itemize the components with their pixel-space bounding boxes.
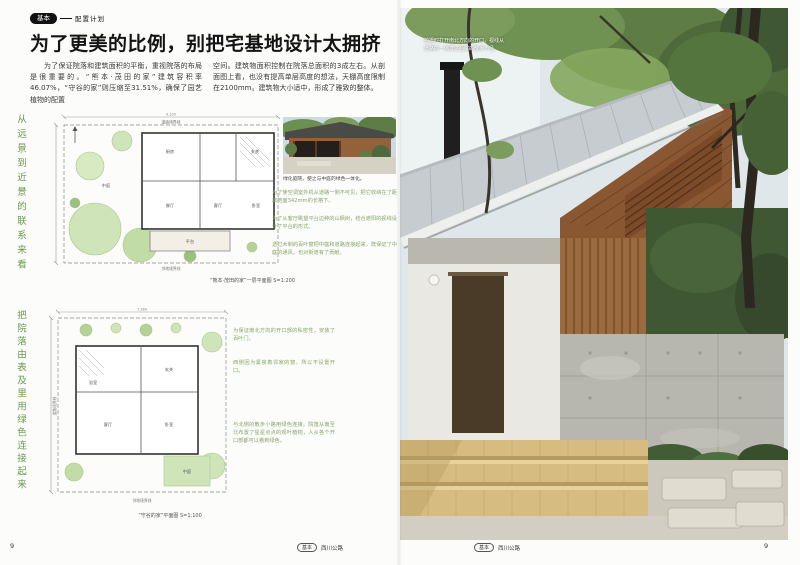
boundary-label-bottom: 邻地境界线 [162, 266, 181, 271]
plan1-caption: “熊本·茂田的家”一层平面图 S=1:200 [95, 277, 295, 284]
garden-foliage [650, 223, 750, 293]
footer-left: 基本 西川公路 [297, 543, 343, 552]
intro-column-1: 为了保证院落和建筑面积的平衡，重视院落的布局是很重要的。“熊本·茂田的家”建筑容… [30, 61, 202, 106]
floor-plan-1: 9,100 道路境界线 邻地境界线 [50, 111, 285, 281]
step-edge [400, 486, 648, 490]
room-label: 客厅 [104, 421, 112, 428]
boundary-label-left: 道路境界线 [52, 396, 57, 415]
room-label: 厨房 [166, 148, 174, 155]
plan1-note-3: 透过木制的百叶窗把中庭和道路连接起来，既保证了中庭的通风，也对街道有了贡献。 [272, 241, 397, 257]
room-label: 卧室 [165, 421, 173, 428]
slat-screen [560, 238, 646, 334]
section-badge: 基本 [30, 13, 57, 24]
room-label: 浴室 [89, 379, 97, 386]
room-label: 客厅 [214, 202, 222, 209]
mini-house-photo [283, 117, 396, 174]
room-label: 卧室 [252, 202, 260, 209]
mini-path-stone [297, 161, 331, 166]
mini-porch-opening [293, 141, 341, 157]
wall-lamp [429, 275, 439, 285]
room-label: 中庭 [102, 182, 111, 189]
side-label-top: 从远景到近景的联系来看 [13, 114, 27, 274]
room-label: 平台 [186, 238, 194, 245]
plan2-note-2: 西侧因为紧挨着邻家的窗，所以不设置开口。 [233, 359, 335, 375]
tile-steps [400, 440, 648, 516]
tag-dash [60, 18, 72, 19]
main-photo-caption: 拍摄时打开南北方向的开口，视线从 道路的一侧直达后院的散步小径。 [424, 37, 534, 53]
footer-left-text: 西川公路 [321, 544, 343, 552]
intro-column-2: 空间。建筑物面积控制在院落总面积的3成左右。从剖面图上看，也没有提高单层高度的想… [213, 61, 385, 95]
boundary-label-bottom: 邻地境界线 [133, 498, 152, 503]
entrance-door [452, 276, 504, 433]
book-spread: 基本 配置计划 为了更美的比例，别把宅基地设计太拥挤 为了保证院落和建筑面积的平… [0, 0, 800, 565]
door-lintel [448, 272, 508, 276]
footer-right: 基本 西川公路 [474, 543, 520, 552]
side-label-bottom: 把院落由表及里用绿色连接起来 [13, 310, 27, 492]
plan2-note-3: 与北侧的散步小路用绿色连接。院落从南至北布置了星星点点的观叶植物，人从各个开口部… [233, 421, 335, 445]
sun-dapple [580, 356, 640, 380]
entrance-wall [408, 238, 560, 443]
boundary-label-top: 道路境界线 [162, 120, 181, 125]
section-tag: 基本 配置计划 [30, 13, 105, 24]
north-arrow-icon [73, 126, 78, 143]
footer-right-badge: 基本 [474, 543, 494, 552]
room-label: 玄关 [251, 148, 259, 155]
caption-line-2: 道路的一侧直达后院的散步小径。 [424, 45, 534, 53]
plan1-note-2: 为了从客厅眺望平台边种的山枫树，结合遮阳的视线设计了平台的形式。 [272, 215, 397, 231]
page-number-left: 9 [10, 542, 14, 550]
plan1-notes: 为了使空调室外机从道路一侧不可见，把它收纳在了距离地面342mm的长格下。 为了… [272, 189, 397, 267]
dimension-label: 7,280 [137, 308, 147, 312]
page-title: 为了更美的比例，别把宅基地设计太拥挤 [30, 29, 400, 56]
caption-line-1: 拍摄时打开南北方向的开口，视线从 [424, 37, 534, 45]
dimension-label: 9,100 [166, 113, 176, 117]
room-label: 中庭 [183, 468, 192, 475]
page-number-right: 9 [764, 542, 768, 550]
room-label: 餐厅 [166, 202, 174, 209]
page-gutter [396, 0, 402, 565]
plan1-note-1: 为了使空调室外机从道路一侧不可见，把它收纳在了距离地面342mm的长格下。 [272, 189, 397, 205]
room-label: 玄关 [165, 366, 173, 373]
footer-right-text: 西川公路 [498, 544, 520, 552]
footer-left-badge: 基本 [297, 543, 317, 552]
main-house-photo [400, 8, 788, 540]
section-category: 配置计划 [75, 13, 105, 23]
mini-photo-caption: 绿化庭院，使之与中庭的绿色一体化。 [283, 177, 396, 184]
plan2-note-1: 为保证南北方向的开口部的私密性，安装了百叶门。 [233, 327, 335, 343]
plan2-caption: “守谷的家”平面图 S=1:100 [80, 512, 260, 519]
eave-underside-shadow [408, 238, 560, 264]
building-outline [76, 346, 198, 454]
floor-plan-2: 7,280 邻地境界线 道路境界线 玄关 客厅 卧 [46, 306, 238, 508]
